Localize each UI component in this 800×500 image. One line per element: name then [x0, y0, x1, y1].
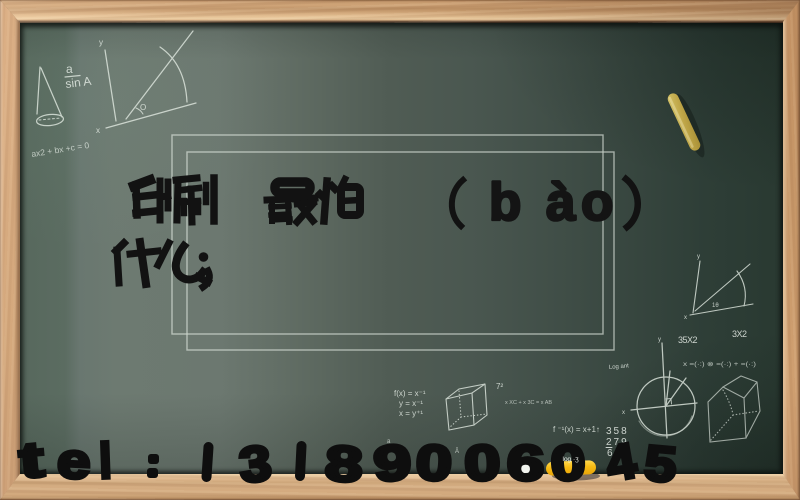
svg-text:log ·ʒ: log ·ʒ: [563, 456, 580, 463]
svg-text:6: 6: [506, 434, 545, 492]
svg-text:5: 5: [642, 435, 679, 493]
svg-text:0: 0: [463, 435, 501, 491]
svg-text:8: 8: [324, 435, 364, 493]
svg-text:e: e: [56, 432, 92, 490]
svg-text:9: 9: [371, 433, 413, 492]
svg-text:0: 0: [414, 435, 453, 492]
svg-text:4: 4: [602, 432, 641, 492]
svg-text:t: t: [17, 432, 46, 489]
svg-text:l: l: [98, 434, 112, 490]
svg-text:3: 3: [236, 435, 274, 494]
